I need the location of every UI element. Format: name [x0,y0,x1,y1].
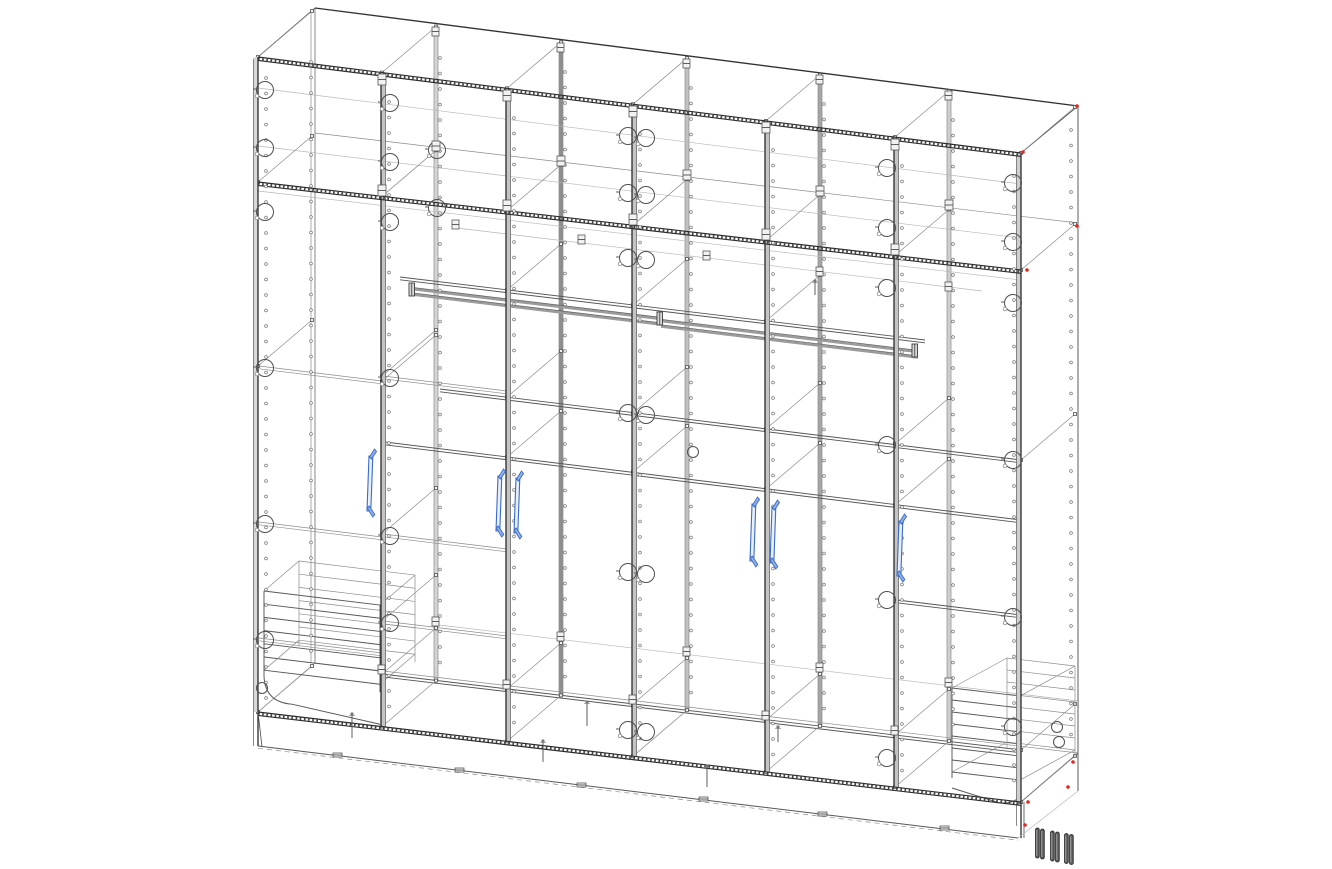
door-handle[interactable] [514,471,524,539]
cam-fittings [253,82,1065,767]
door-handle[interactable] [367,449,377,517]
hanging-rails[interactable] [409,283,918,358]
adjustable-foot[interactable] [1051,831,1055,861]
door-handle[interactable] [897,514,907,582]
door-handle[interactable] [770,500,780,569]
adjustable-foot[interactable] [1036,828,1040,858]
partition-panel[interactable] [632,105,637,756]
partition-panel[interactable] [506,89,511,741]
wardrobe-wireframe-drawing[interactable] [0,0,1332,869]
door-handle[interactable] [496,469,506,537]
adjustable-foot[interactable] [1065,834,1069,864]
hardware-fittings [333,27,953,830]
adjustable-foot[interactable] [1041,829,1045,859]
adjustable-foot[interactable] [1056,832,1060,862]
dowel-pins [349,279,818,787]
cad-viewport[interactable] [0,0,1332,869]
partition-panel[interactable] [765,122,770,772]
partition-panel[interactable] [894,138,899,787]
adjustable-foot[interactable] [1070,835,1074,865]
adjustable-feet[interactable] [1036,828,1074,865]
door-handle[interactable] [750,497,760,567]
